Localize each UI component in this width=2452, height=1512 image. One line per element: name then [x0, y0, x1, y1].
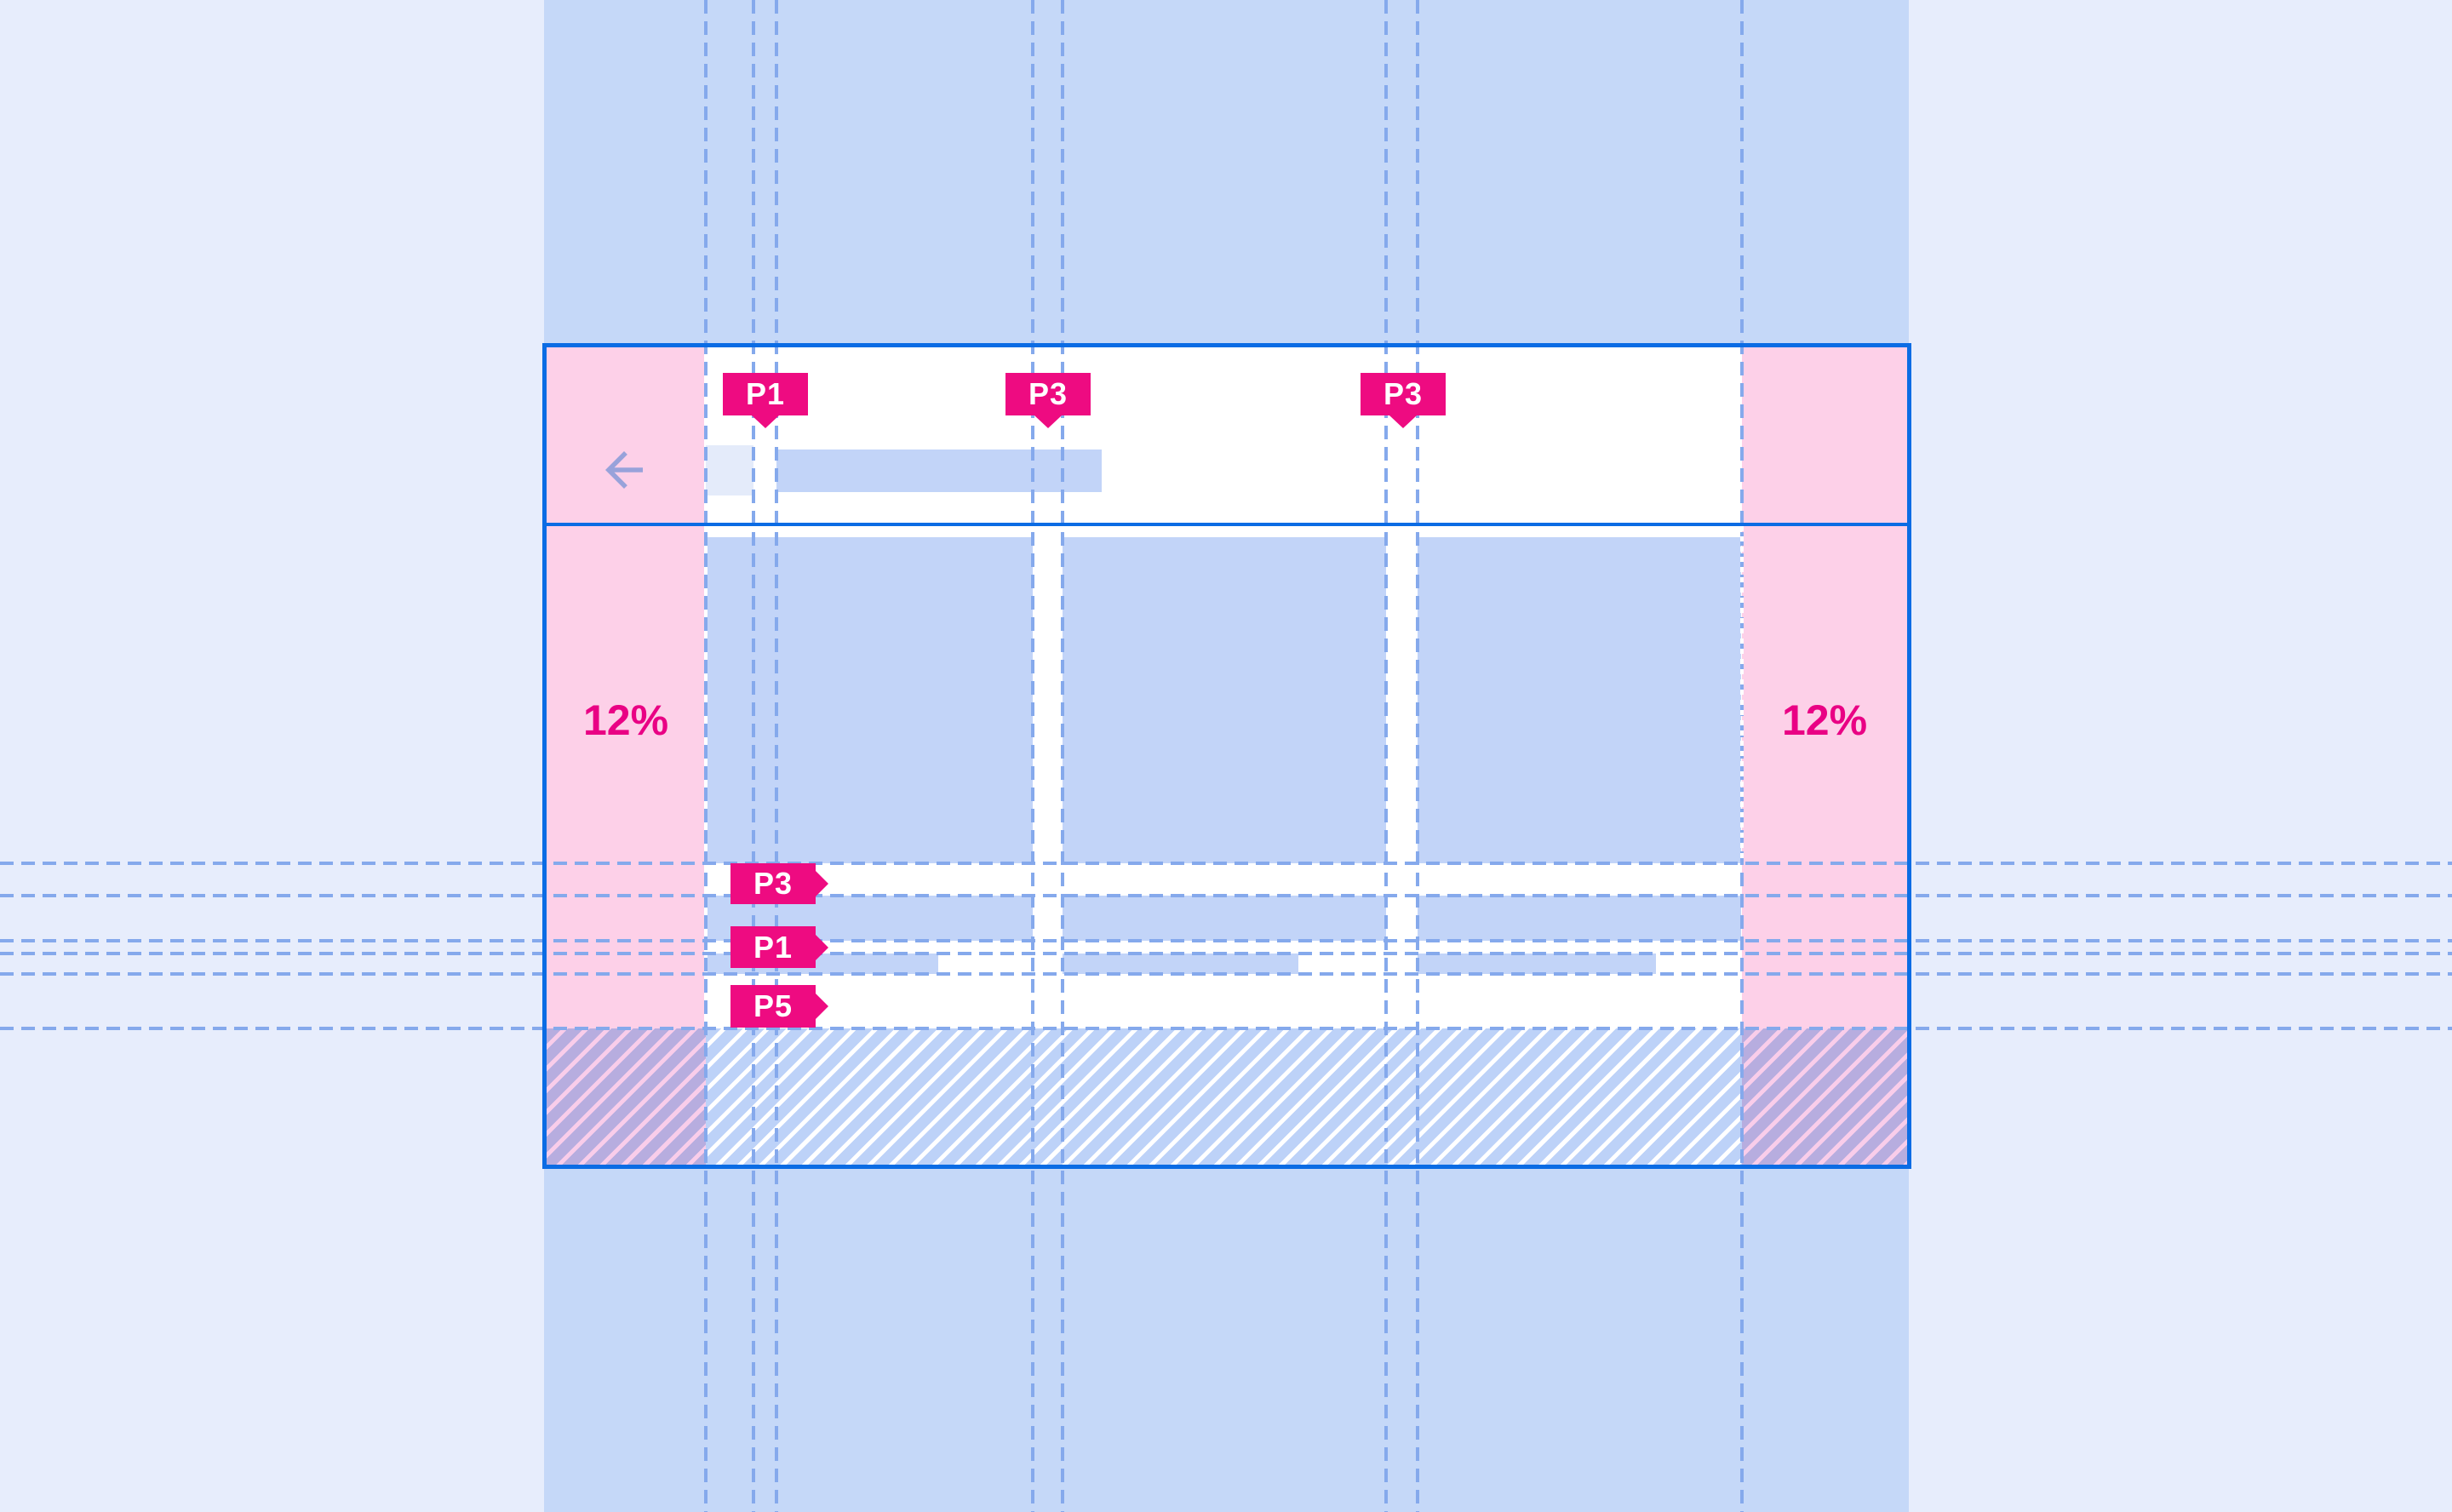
marker-pointer-right-icon: [816, 994, 828, 1019]
marker-pointer-down-icon: [1034, 415, 1062, 428]
padding-marker-label: P3: [1384, 376, 1423, 412]
margin-percentage-right: 12%: [1739, 696, 1910, 744]
marker-pointer-down-icon: [1389, 415, 1417, 428]
margin-percentage-left: 12%: [541, 696, 711, 744]
marker-pointer-down-icon: [752, 415, 779, 428]
padding-marker-p3-top-2: P3: [1361, 373, 1446, 415]
padding-marker-p1-top: P1: [723, 373, 808, 415]
padding-marker-label: P5: [753, 988, 793, 1024]
layout-spec-canvas: P1 P3 P3 P3 P1 P5 12% 12%: [0, 0, 2452, 1512]
padding-marker-label: P1: [746, 376, 785, 412]
padding-marker-label: P1: [753, 930, 793, 965]
padding-marker-label: P3: [1028, 376, 1068, 412]
app-bar-divider: [547, 523, 1907, 526]
marker-pointer-right-icon: [816, 871, 828, 896]
device-frame-border: [542, 343, 1911, 1169]
padding-marker-p5-left: P5: [730, 985, 816, 1028]
padding-marker-p1-left: P1: [730, 926, 816, 968]
padding-marker-p3-top-1: P3: [1005, 373, 1091, 415]
padding-marker-label: P3: [753, 866, 793, 902]
marker-pointer-right-icon: [816, 935, 828, 960]
padding-marker-p3-left: P3: [730, 863, 816, 904]
